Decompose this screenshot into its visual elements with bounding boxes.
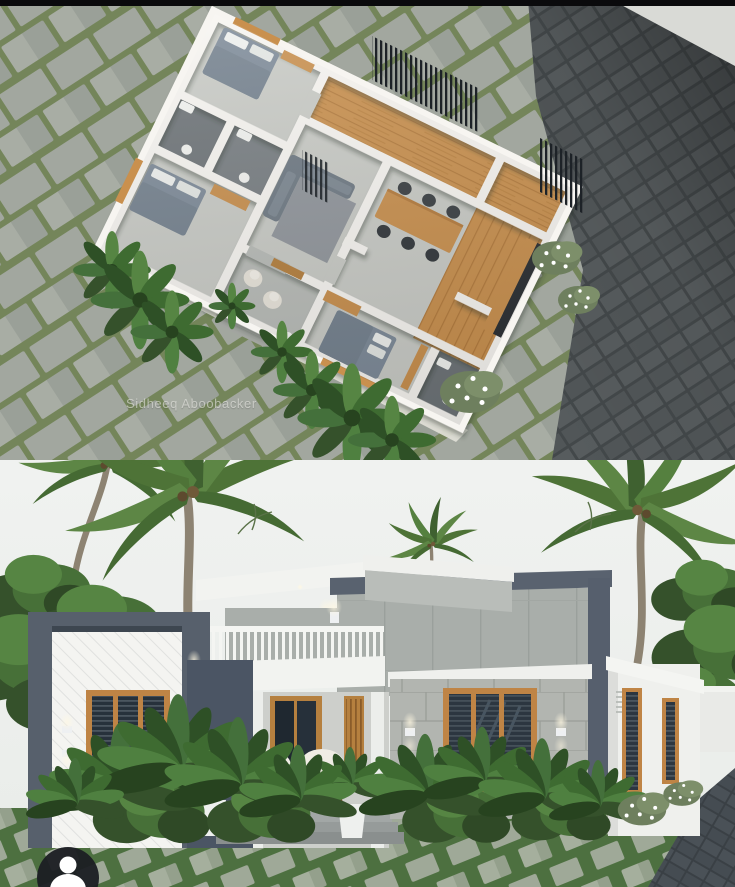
- post-image: Sidheeq Aboobacker: [0, 0, 735, 887]
- floor-plan-render: [0, 0, 735, 460]
- exterior-render: [0, 460, 735, 887]
- top-bar: [0, 0, 735, 6]
